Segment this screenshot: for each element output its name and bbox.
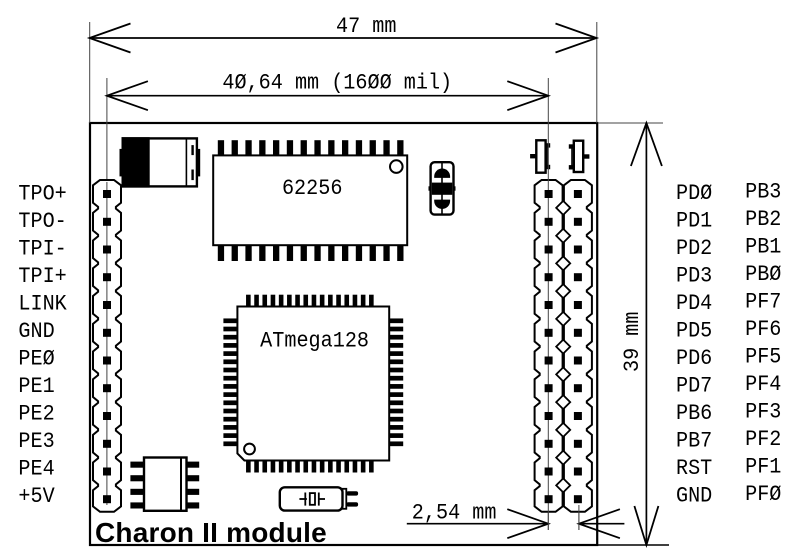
svg-text:PEØ: PEØ: [18, 347, 54, 372]
svg-text:PD6: PD6: [676, 346, 712, 371]
svg-text:PD7: PD7: [676, 373, 712, 398]
svg-text:PD3: PD3: [676, 263, 712, 288]
svg-text:39 mm: 39 mm: [620, 312, 645, 372]
svg-text:PBØ: PBØ: [745, 262, 781, 287]
svg-text:Charon II module: Charon II module: [95, 517, 327, 548]
svg-text:GND: GND: [676, 483, 712, 508]
svg-text:2,54 mm: 2,54 mm: [412, 501, 497, 526]
svg-text:PD5: PD5: [676, 318, 712, 343]
svg-text:PF6: PF6: [745, 317, 781, 342]
svg-text:TPO+: TPO+: [18, 182, 66, 207]
svg-text:PF1: PF1: [745, 455, 781, 480]
svg-text:PDØ: PDØ: [676, 181, 712, 206]
svg-text:PF2: PF2: [745, 427, 781, 452]
svg-text:TPI-: TPI-: [18, 237, 66, 262]
svg-text:TPO-: TPO-: [18, 209, 66, 234]
svg-text:PE4: PE4: [18, 457, 54, 482]
svg-text:PE2: PE2: [18, 402, 54, 427]
svg-text:PE1: PE1: [18, 374, 54, 399]
svg-text:PE3: PE3: [18, 429, 54, 454]
svg-text:PD4: PD4: [676, 291, 712, 316]
svg-text:GND: GND: [18, 319, 54, 344]
svg-text:+5V: +5V: [18, 484, 54, 509]
svg-text:LINK: LINK: [18, 292, 67, 317]
svg-text:RST: RST: [676, 456, 712, 481]
svg-text:PFØ: PFØ: [745, 482, 781, 507]
svg-text:PD1: PD1: [676, 208, 712, 233]
svg-text:PB3: PB3: [745, 180, 781, 205]
svg-text:TPI+: TPI+: [18, 264, 66, 289]
svg-text:PF4: PF4: [745, 372, 781, 397]
svg-text:ATmega128: ATmega128: [260, 329, 369, 354]
svg-text:PB1: PB1: [745, 235, 781, 260]
svg-text:PF5: PF5: [745, 345, 781, 370]
svg-text:47 mm: 47 mm: [336, 14, 396, 39]
svg-text:4Ø,64 mm (16ØØ mil): 4Ø,64 mm (16ØØ mil): [222, 71, 452, 96]
svg-text:62256: 62256: [282, 176, 342, 201]
svg-text:PB2: PB2: [745, 207, 781, 232]
svg-text:PB6: PB6: [676, 401, 712, 426]
svg-text:PB7: PB7: [676, 428, 712, 453]
svg-text:PD2: PD2: [676, 236, 712, 261]
svg-text:PF7: PF7: [745, 290, 781, 315]
svg-text:PF3: PF3: [745, 400, 781, 425]
